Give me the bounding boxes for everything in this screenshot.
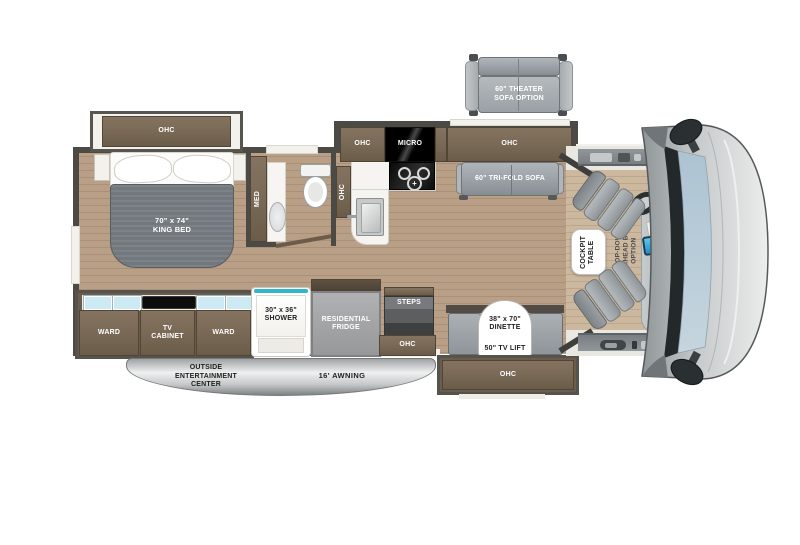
ohc-cabinet-bedroom: OHC — [102, 116, 231, 147]
front-cap — [628, 106, 778, 398]
kitchen-sink — [356, 198, 384, 236]
ward-window — [226, 296, 253, 310]
steps-top-rail — [384, 287, 434, 296]
bath-ohc-cabinet: OHC — [336, 166, 351, 218]
med-cabinet: MED — [250, 156, 267, 242]
wardrobe-slideout: WARD TV CABINET WARD — [75, 290, 254, 359]
residential-fridge: RESIDENTIAL FRIDGE — [311, 291, 381, 357]
bed-blanket: 70" x 74" KING BED — [110, 184, 234, 268]
tri-fold-sofa-label: 60" TRI-FOLD SOFA — [475, 175, 545, 183]
dinette-tv-lift-label: 50" TV LIFT — [485, 345, 526, 353]
microwave: MICRO — [385, 127, 435, 162]
ward-window — [84, 296, 112, 310]
living-ohc-label: OHC — [501, 140, 517, 148]
vanity-sink — [269, 202, 286, 232]
rv-floorplan: OHC 70" x 74" KING BED MED OHC OHC MICRO — [0, 0, 800, 545]
cabinet-filler — [435, 127, 447, 162]
steps-label: STEPS — [397, 299, 421, 307]
bedroom-slideout: OHC — [90, 111, 243, 152]
king-bed-label: 70" x 74" KING BED — [153, 217, 191, 234]
ward-left-label: WARD — [98, 329, 120, 337]
window-sofa-slide — [450, 119, 570, 126]
dinette-ohc-label: OHC — [500, 371, 516, 379]
med-label: MED — [254, 191, 262, 207]
ward-window — [113, 296, 141, 310]
shower-accent — [254, 289, 308, 293]
toilet — [299, 164, 332, 210]
kitchen-ohc-label: OHC — [354, 140, 370, 148]
ward-right: WARD — [196, 310, 251, 356]
ward-left: WARD — [79, 310, 139, 356]
ward-right-label: WARD — [212, 329, 234, 337]
shower-label: 30" x 36" SHOWER — [265, 307, 298, 324]
kitchen-faucet — [347, 215, 357, 218]
theater-sofa-option: 60" THEATER SOFA OPTION — [465, 55, 573, 117]
window-rear-left — [71, 226, 80, 284]
dinette-size-label: 38" x 70" DINETTE — [489, 316, 521, 333]
dinette-table: 38" x 70" DINETTE 50" TV LIFT — [478, 300, 532, 357]
window-bath — [266, 145, 318, 154]
entry-ohc-cabinet: OHC — [379, 335, 436, 356]
microwave-label: MICRO — [398, 140, 422, 148]
ohc-bedroom-label: OHC — [158, 127, 174, 135]
king-bed: 70" x 74" KING BED — [110, 152, 234, 268]
dinette-ohc-slideout: OHC — [437, 355, 579, 395]
ohc-cabinet-kitchen: OHC — [340, 127, 385, 162]
tv-cabinet: TV CABINET — [140, 310, 195, 356]
wall-bath-bottom-stub — [246, 242, 276, 247]
tv-slot — [142, 296, 196, 309]
dinette-bench-left — [448, 313, 481, 355]
theater-sofa-label: 60" THEATER SOFA OPTION — [494, 86, 544, 102]
bath-ohc-label: OHC — [339, 184, 347, 200]
ward-window — [197, 296, 225, 310]
ohc-cabinet-living: OHC — [447, 127, 572, 162]
tv-cabinet-label: TV CABINET — [151, 325, 184, 341]
range-cooktop: + — [389, 162, 435, 190]
entry-steps: STEPS — [384, 296, 434, 336]
outside-entertainment-label: OUTSIDE ENTERTAINMENT CENTER — [175, 364, 237, 389]
tri-fold-sofa: 60" TRI-FOLD SOFA — [456, 162, 564, 199]
dinette-slide-tab — [459, 394, 545, 399]
entry-ohc-label: OHC — [399, 341, 415, 349]
fridge-label: RESIDENTIAL FRIDGE — [322, 316, 371, 332]
nightstand-left — [94, 154, 110, 181]
awning-bar: OUTSIDE ENTERTAINMENT CENTER 16' AWNING — [126, 358, 436, 396]
awning-label: 16' AWNING — [319, 371, 366, 380]
shower: 30" x 36" SHOWER — [251, 287, 311, 357]
